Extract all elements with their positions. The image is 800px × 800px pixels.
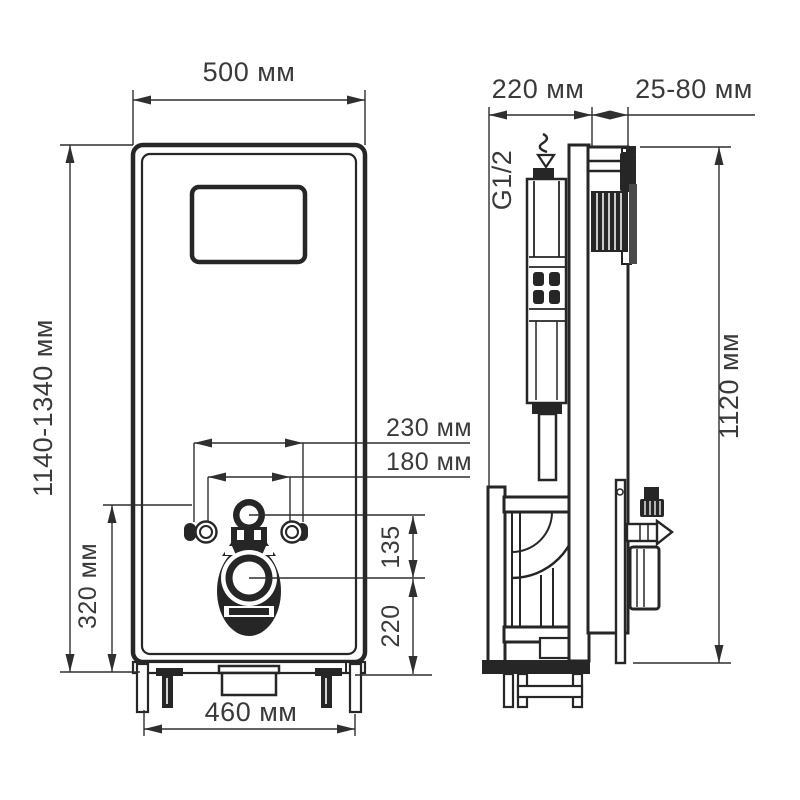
bracket-inner-lines [512,512,520,627]
side-foot-stud-1 [504,674,513,707]
dim-label-fixing-inner: 180 мм [386,448,472,476]
dim-label-side-depth: 220 мм [492,74,585,104]
right-foot [315,668,342,708]
side-foot-bar [518,686,582,697]
wall-plate-section [629,184,637,264]
panel-section-block [591,191,628,252]
water-supply-arrow-icon [538,134,554,167]
drain-pipe-lines [541,568,553,627]
right-fixing-bolt [282,522,309,543]
water-pipe-connector [627,487,672,544]
front-view [133,145,365,712]
installation-frame-drawing: 500 мм 1140-1340 мм 320 мм 230 мм 180 мм [0,0,800,800]
valve-pipe [539,414,556,480]
dim-label-front-width: 500 мм [203,57,296,87]
dim-label-inlet-to-outlet: 135 [377,525,405,568]
lower-mounting-plate [616,480,625,663]
right-outer-stud [350,664,361,712]
dim-label-frame-height: 1120 мм [714,333,744,439]
frame-rail [569,145,589,661]
water-connection-label: G1/2 [487,150,517,211]
dim-label-outlet-to-floor: 220 [377,604,405,647]
flush-bend-curve-inner [512,512,552,552]
plate-bolt-hole [617,489,623,495]
dim-label-front-height: 1140-1340 мм [28,319,58,497]
technical-drawing-page: 500 мм 1140-1340 мм 320 мм 230 мм 180 мм [0,0,800,800]
cone-fitting [657,521,672,544]
dim-label-base-width: 460 мм [205,697,298,727]
flush-button-plate [192,187,305,262]
left-outer-stud [137,664,148,712]
side-view [482,134,672,707]
dim-wall-offset: 25-80 мм [592,74,755,150]
left-fixing-bolt [184,522,217,543]
dim-label-fixing-outer: 230 мм [386,414,472,442]
fill-valve-assembly [527,168,566,480]
drain-box [222,673,276,695]
left-foot [156,668,183,708]
dim-label-inlet-height: 320 мм [74,543,102,629]
bracket-front-bar [488,487,505,665]
dim-label-wall-offset: 25-80 мм [635,74,753,104]
dim-front-width: 500 мм [133,57,365,145]
